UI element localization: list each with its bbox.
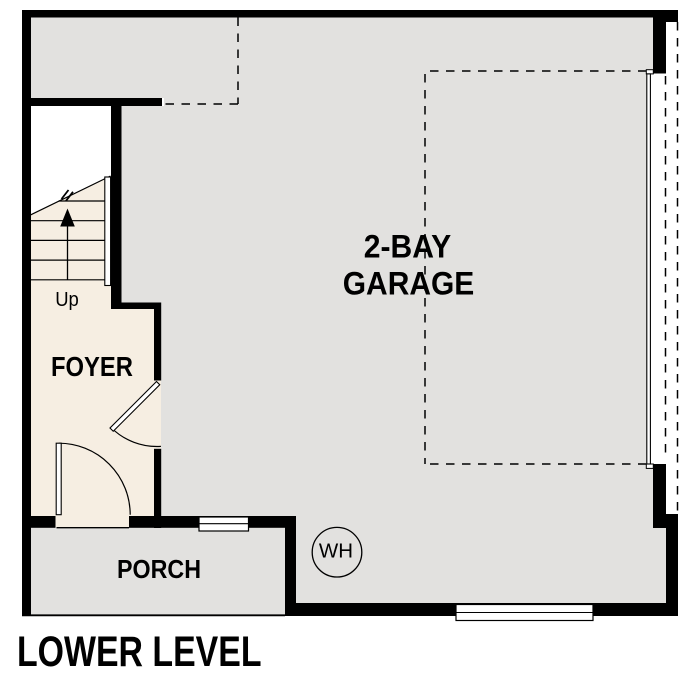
svg-text:2-BAY: 2-BAY xyxy=(364,229,452,265)
svg-text:PORCH: PORCH xyxy=(117,554,201,584)
svg-text:Up: Up xyxy=(55,289,79,311)
svg-text:FOYER: FOYER xyxy=(51,351,133,382)
svg-text:WH: WH xyxy=(319,540,353,563)
svg-text:GARAGE: GARAGE xyxy=(343,266,475,302)
svg-text:LOWER LEVEL: LOWER LEVEL xyxy=(17,628,262,676)
